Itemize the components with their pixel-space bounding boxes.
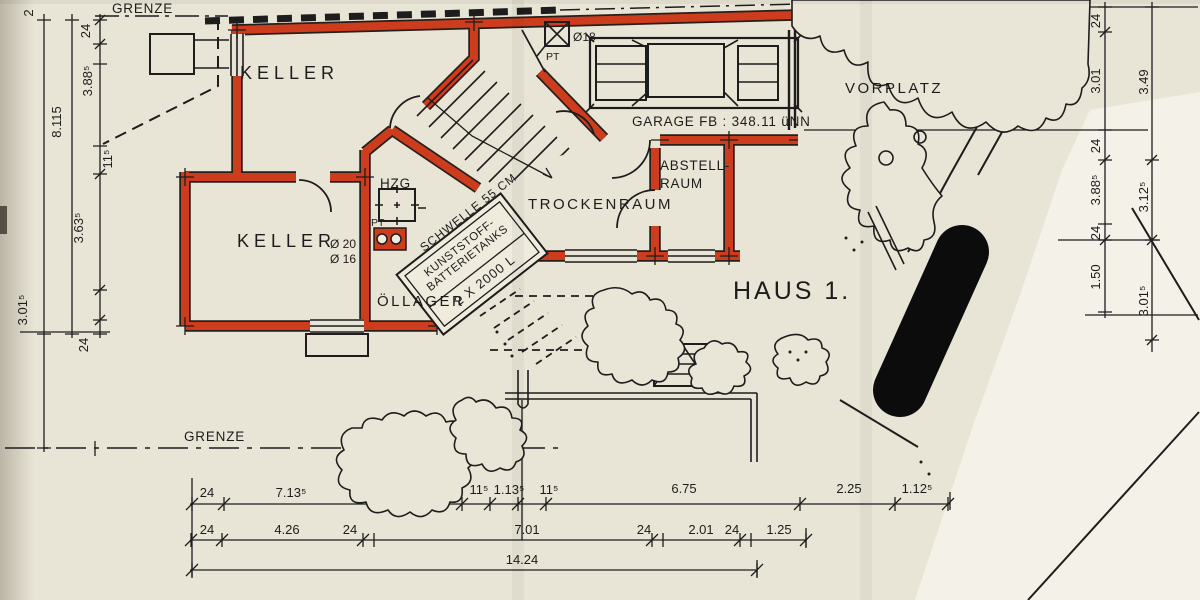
dim-label: 24 [1088, 139, 1103, 153]
dim-label: 1.12⁵ [902, 481, 933, 496]
grenze-bottom-label: GRENZE [184, 429, 245, 444]
room-label-abstell-1: ABSTELL- [660, 158, 730, 173]
chimney-block [374, 228, 406, 250]
dim-label: 24 [200, 485, 214, 500]
room-label-hzg: HZG [380, 176, 411, 191]
dim-label: 1.25 [766, 522, 791, 537]
pipe-label-18: Ø18 [573, 30, 596, 44]
dim-label: 11⁵ [470, 482, 489, 497]
dim-label: 3.49 [1136, 69, 1151, 94]
room-label-keller-lower: KELLER [237, 231, 336, 251]
paper-edge-mark [0, 206, 7, 234]
pipe-label-16: Ø 16 [330, 252, 356, 266]
dim-label: 24 [200, 522, 214, 537]
dim-label: 6.75 [671, 481, 696, 496]
window-abstellraum [668, 249, 715, 263]
dim-label: 3.88⁵ [80, 66, 95, 97]
dim-label: 8.115 [49, 106, 64, 138]
dim-label: 3.01⁵ [15, 295, 30, 326]
dim-label: 24 [637, 522, 651, 537]
window-trockenraum [565, 249, 637, 263]
room-label-keller-upper: KELLER [240, 63, 339, 83]
haus-label: HAUS 1. [733, 277, 851, 305]
dim-label: 3.01⁵ [1136, 286, 1151, 317]
paper-top-edge [0, 0, 1200, 4]
dim-label: 24 [343, 522, 357, 537]
dim-label: 2.25 [836, 481, 861, 496]
flue-circle [377, 234, 387, 244]
room-label-trockenraum: TROCKENRAUM [528, 196, 673, 213]
paper-fold-2 [860, 0, 872, 600]
dim-label: 11⁵ [100, 150, 115, 169]
area-label-vorplatz: VORPLATZ [845, 80, 943, 97]
pipe-label-20: Ø 20 [330, 237, 356, 251]
dim-label: 24 [725, 522, 739, 537]
dim-label: 24 [76, 338, 91, 352]
dim-label: 7.13⁵ [276, 485, 307, 500]
dim-label: 3.63⁵ [71, 213, 86, 244]
pt-label-hzg: PT [371, 217, 385, 229]
dim-label: 1.50 [1088, 264, 1103, 289]
flue-circle [391, 234, 401, 244]
dim-label: 24 [78, 24, 93, 38]
room-label-abstell-2: RAUM [660, 176, 703, 191]
dim-label: 4.26 [274, 522, 299, 537]
dim-label: 2.01 [688, 522, 713, 537]
dim-label: 11⁵ [540, 482, 559, 497]
pt-label-top: PT [546, 51, 560, 63]
garage-label: GARAGE FB : 348.11 üNN [632, 114, 811, 129]
dim-label: 24 [1088, 226, 1103, 240]
scanned-floorplan-sheet: 24 7.13⁵ 11⁵ 1.13⁵ 11⁵ 6.75 2.25 1.12⁵ 2… [0, 0, 1200, 600]
dim-label: 3.12⁵ [1136, 182, 1151, 213]
dim-label: 3.01 [1088, 68, 1103, 93]
floorplan-canvas: 24 7.13⁵ 11⁵ 1.13⁵ 11⁵ 6.75 2.25 1.12⁵ 2… [0, 0, 1200, 600]
dim-label: 3.88⁵ [1088, 175, 1103, 206]
dim-label: 2 [21, 9, 36, 16]
paper-fold-1 [512, 0, 524, 600]
room-label-oellager: ÖLLAGER [377, 292, 465, 310]
